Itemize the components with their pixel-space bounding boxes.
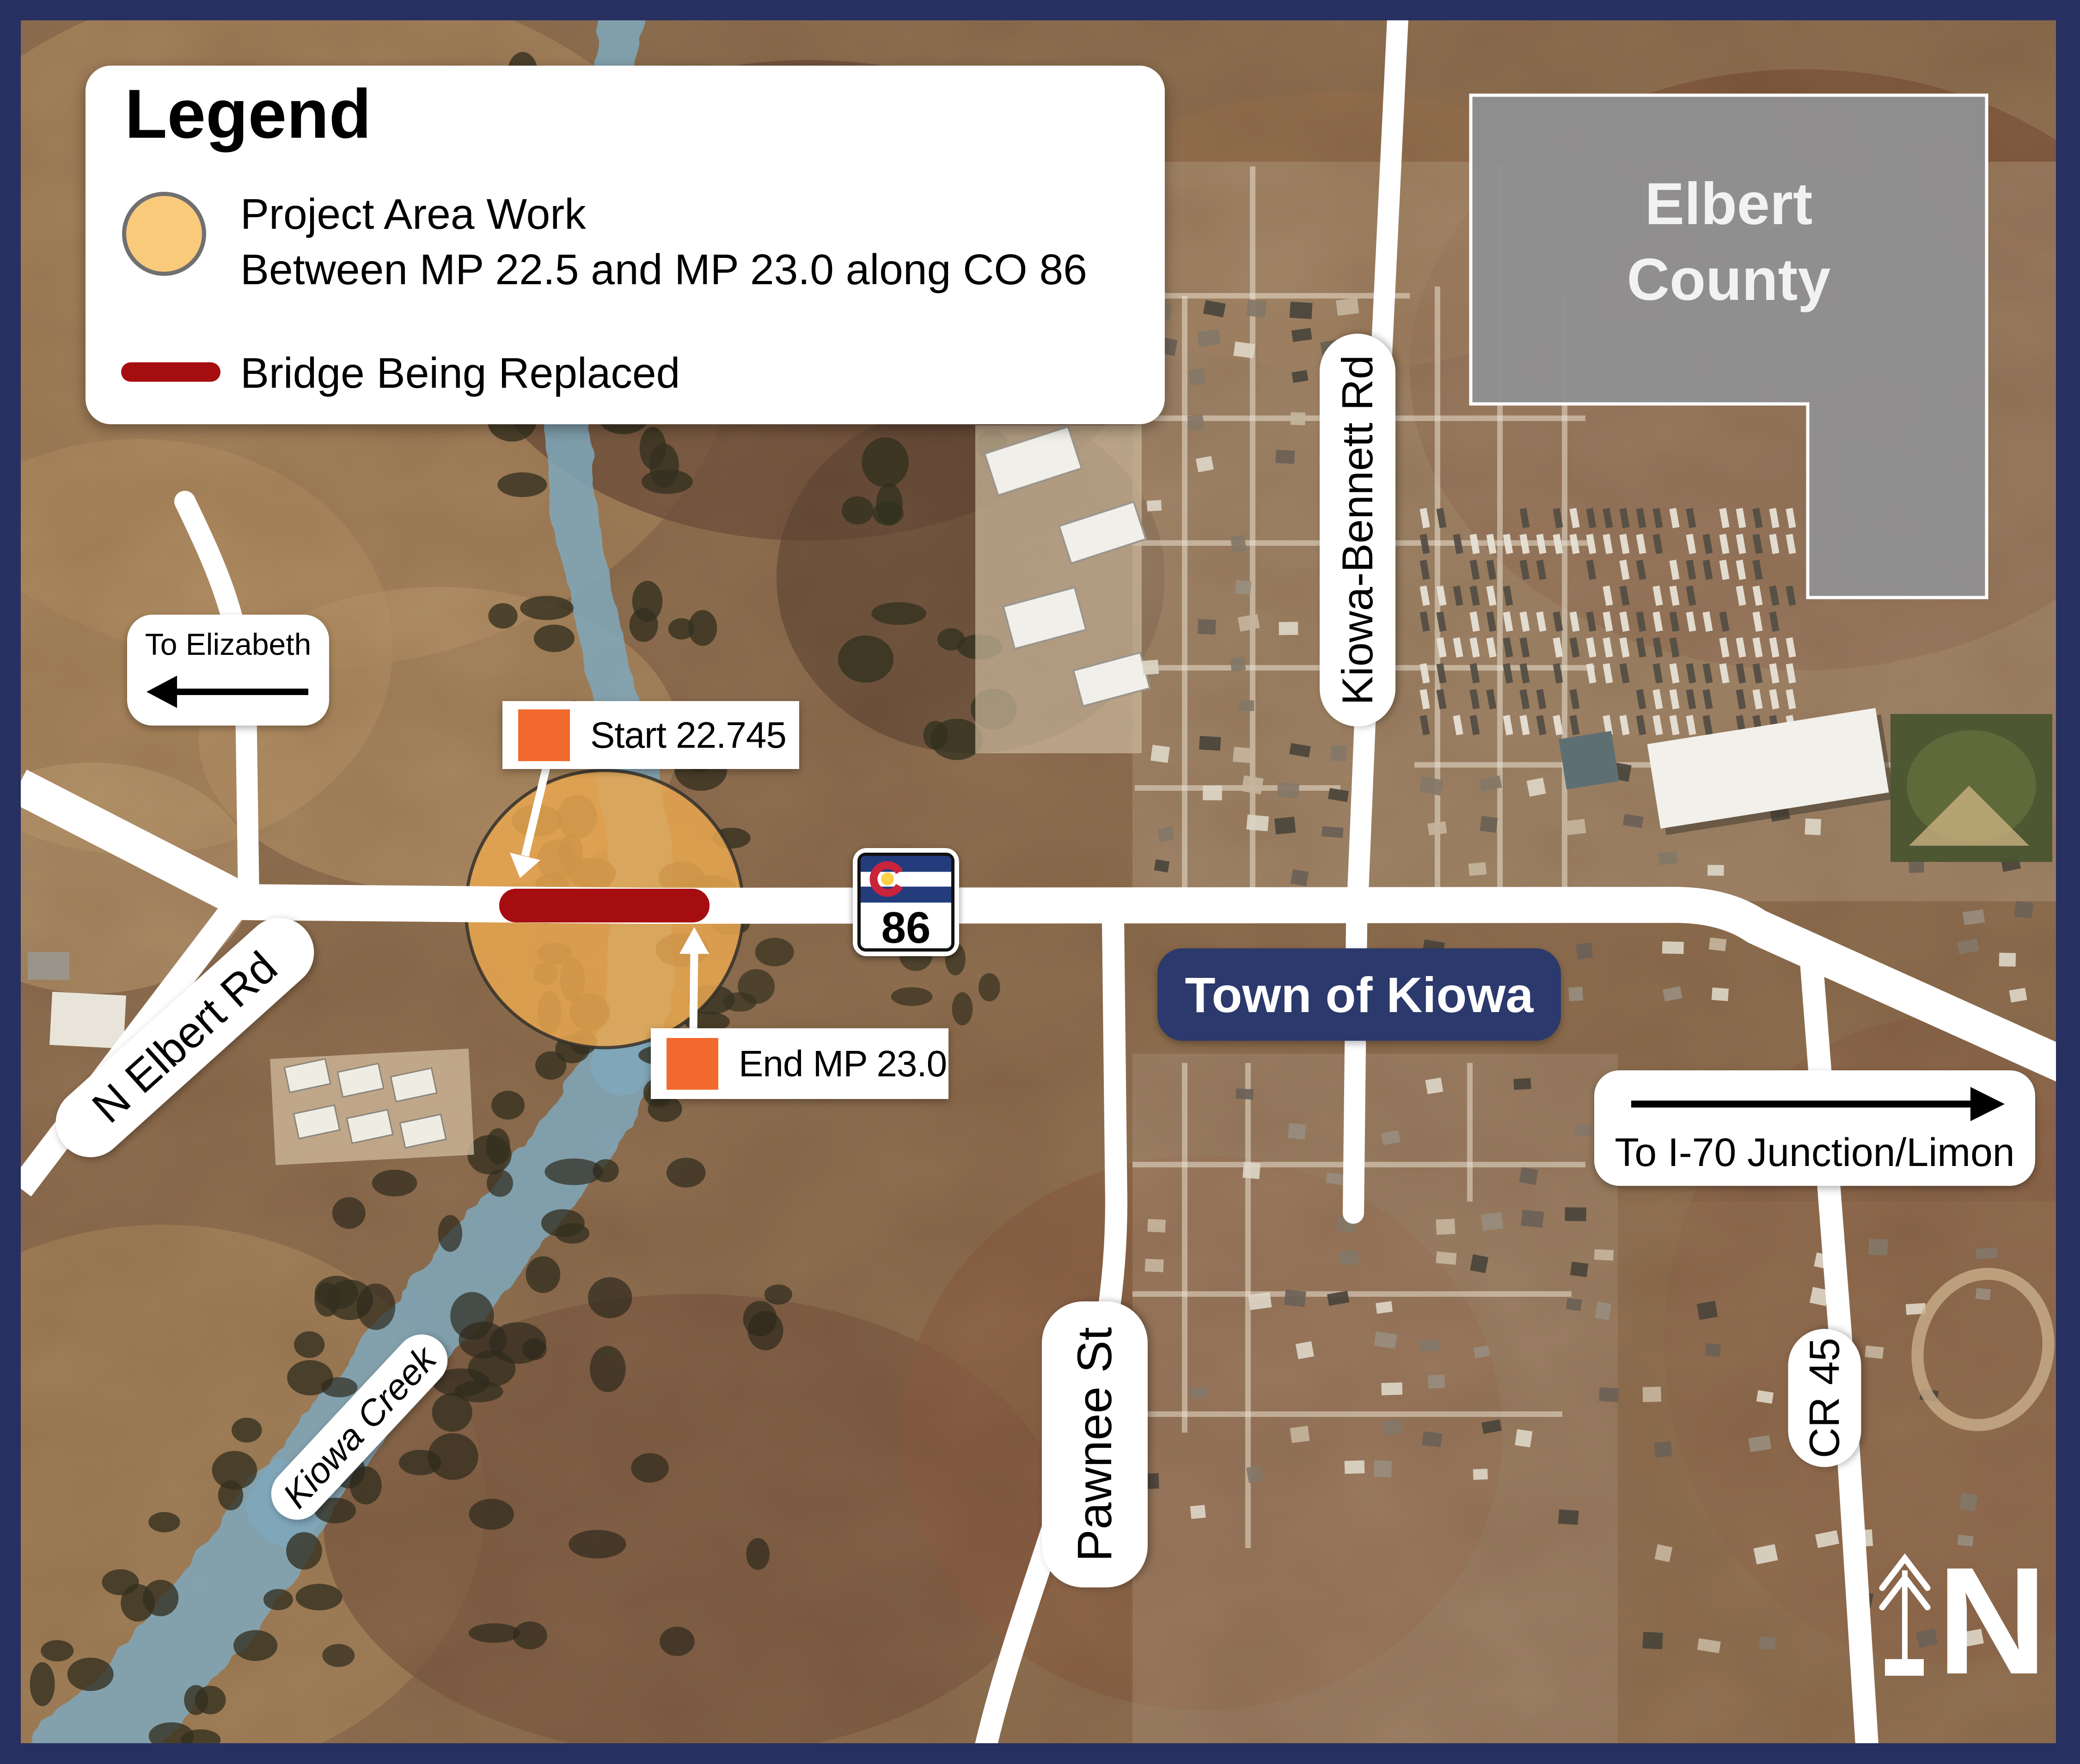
right-arrow-icon [1594, 1079, 2035, 1127]
north-label: N [1932, 1548, 2052, 1693]
direction-west-text: To Elizabeth [127, 627, 329, 662]
road-label-text: Pawnee St [1067, 1327, 1123, 1562]
road-label-pawnee: Pawnee St [1042, 1301, 1148, 1587]
left-arrow-icon [127, 666, 329, 717]
direction-east-callout: To I-70 Junction/Limon [1594, 1070, 2035, 1186]
milepost-square-icon [518, 709, 570, 761]
legend-box: Legend Project Area Work Between MP 22.5… [86, 66, 1165, 424]
road-label-cr45: CR 45 [1788, 1329, 1861, 1467]
direction-west-callout: To Elizabeth [127, 615, 329, 726]
county-label-line2: County [1539, 242, 1918, 318]
bridge-swatch-icon [121, 362, 220, 382]
map-border-left [0, 0, 21, 1764]
legend-title: Legend [125, 74, 371, 154]
milepost-square-icon [667, 1038, 718, 1090]
end-milepost-text: End MP 23.0 [739, 1043, 947, 1085]
map-border-right [2056, 0, 2080, 1764]
project-map: Legend Project Area Work Between MP 22.5… [0, 0, 2080, 1764]
town-label: Town of Kiowa [1157, 948, 1561, 1041]
north-arrow-icon [1877, 1552, 1937, 1686]
map-border-top [0, 0, 2080, 20]
route-number: 86 [861, 903, 951, 952]
co-86-route-shield: 86 [853, 848, 959, 956]
town-label-text: Town of Kiowa [1185, 966, 1534, 1024]
road-label-kiowa-bennett: Kiowa-Bennett Rd [1320, 334, 1395, 726]
start-milepost-text: Start 22.745 [590, 714, 786, 757]
road-label-text: CR 45 [1800, 1338, 1849, 1459]
road-label-text: Kiowa-Bennett Rd [1333, 355, 1383, 705]
map-border-bottom [0, 1743, 2080, 1764]
county-label-line1: Elbert [1539, 166, 1918, 242]
colorado-flag-icon [861, 856, 951, 903]
legend-project-area-sub: Between MP 22.5 and MP 23.0 along CO 86 [240, 245, 1087, 294]
shield-inner: 86 [857, 853, 954, 952]
legend-project-area-label: Project Area Work [240, 189, 586, 239]
bridge-line [499, 889, 710, 922]
direction-east-text: To I-70 Junction/Limon [1594, 1130, 2035, 1176]
county-label: Elbert County [1539, 166, 1918, 318]
project-area-swatch-icon [122, 192, 206, 276]
start-milepost-callout: Start 22.745 [502, 701, 799, 769]
end-milepost-callout: End MP 23.0 [651, 1028, 948, 1099]
legend-bridge-label: Bridge Being Replaced [240, 348, 680, 398]
